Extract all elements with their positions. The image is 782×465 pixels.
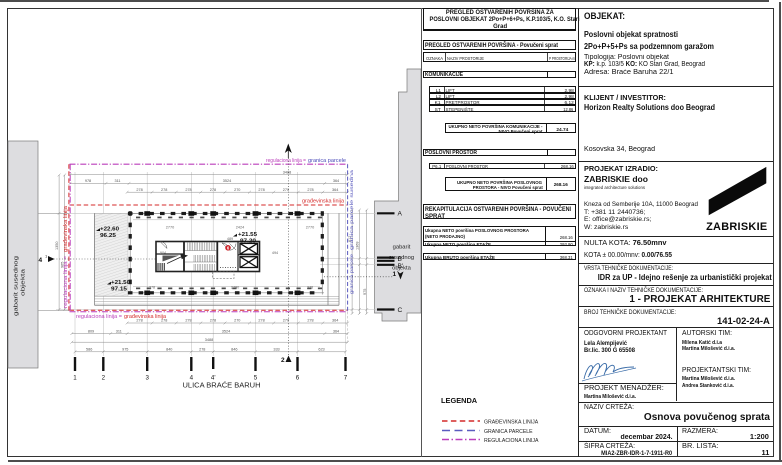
svg-text:278: 278 (210, 319, 216, 323)
svg-text:975: 975 (363, 289, 367, 295)
svg-text:2424: 2424 (236, 226, 244, 230)
svg-text:1: 1 (393, 271, 397, 278)
svg-text:840: 840 (166, 348, 172, 352)
svg-text:4': 4' (211, 375, 216, 382)
svg-text:REGULACIONA LINIJA: REGULACIONA LINIJA (484, 438, 539, 444)
svg-text:364: 364 (333, 329, 339, 333)
svg-text:904: 904 (160, 251, 166, 255)
svg-text:gabarit susednog: gabarit susednog (14, 256, 20, 316)
svg-text:364: 364 (333, 179, 339, 183)
svg-text:regulaciona linija =: regulaciona linija = (63, 256, 69, 308)
svg-text:3488: 3488 (283, 170, 291, 174)
svg-text:278: 278 (185, 319, 191, 323)
svg-text:278: 278 (307, 188, 313, 192)
svg-text:2: 2 (102, 375, 106, 382)
svg-text:278: 278 (307, 286, 313, 290)
svg-text:6: 6 (296, 375, 300, 382)
svg-text:B': B' (398, 263, 404, 270)
svg-text:3524: 3524 (222, 329, 230, 333)
svg-text:građevinska linija: građevinska linija (63, 206, 69, 252)
svg-text:ULICA BRAĆE BARUH: ULICA BRAĆE BARUH (183, 381, 261, 390)
svg-text:+22.60: +22.60 (100, 227, 119, 233)
svg-text:809: 809 (88, 329, 94, 333)
svg-text:3524: 3524 (223, 179, 231, 183)
svg-text:granica parcele susedna: granica parcele susedna (349, 169, 354, 250)
svg-text:278: 278 (258, 319, 264, 323)
svg-text:+21.55: +21.55 (238, 232, 257, 238)
svg-text:7: 7 (344, 375, 348, 382)
svg-text:278: 278 (185, 188, 191, 192)
svg-text:građevinska linija: građevinska linija (124, 314, 166, 320)
svg-text:278: 278 (210, 188, 216, 192)
svg-text:granica parcele: granica parcele (349, 253, 354, 294)
svg-text:270: 270 (234, 188, 240, 192)
svg-text:364: 364 (332, 188, 338, 192)
svg-text:278: 278 (199, 348, 205, 352)
svg-text:A: A (398, 211, 403, 218)
svg-text:GRANICA PARCELE: GRANICA PARCELE (484, 429, 533, 435)
svg-text:gabarit: gabarit (393, 245, 411, 251)
svg-text:4: 4 (190, 375, 194, 382)
svg-text:ZABRISKIE: ZABRISKIE (706, 221, 767, 233)
svg-text:+21.50: +21.50 (111, 280, 130, 286)
svg-text:96.25: 96.25 (100, 233, 116, 239)
svg-text:278: 278 (258, 188, 264, 192)
svg-text:846: 846 (231, 348, 237, 352)
svg-text:1: 1 (45, 254, 48, 259)
svg-text:2780: 2780 (231, 286, 239, 290)
svg-text:975: 975 (122, 348, 128, 352)
svg-text:333: 333 (273, 348, 279, 352)
svg-text:278: 278 (136, 188, 142, 192)
svg-text:regulaciona linija =: regulaciona linija = (266, 158, 306, 164)
svg-text:4: 4 (39, 257, 43, 264)
svg-text:2: 2 (281, 357, 285, 364)
svg-text:489: 489 (227, 237, 233, 241)
svg-text:GRAĐEVINSKA LINIJA: GRAĐEVINSKA LINIJA (484, 420, 539, 426)
svg-text:270: 270 (234, 319, 240, 323)
svg-text:311: 311 (116, 329, 122, 333)
svg-text:364: 364 (332, 319, 338, 323)
svg-text:1369: 1369 (356, 242, 360, 250)
svg-text:494: 494 (272, 251, 278, 255)
svg-text:1350: 1350 (55, 242, 59, 250)
svg-text:278: 278 (161, 188, 167, 192)
svg-text:97.15: 97.15 (111, 287, 127, 293)
svg-text:3488: 3488 (205, 338, 213, 342)
svg-text:regulaciona linija =: regulaciona linija = (76, 314, 122, 320)
svg-text:97.20: 97.20 (240, 239, 256, 245)
svg-text:granica parcele: granica parcele (308, 158, 346, 164)
svg-text:2770: 2770 (306, 226, 314, 230)
svg-text:278: 278 (307, 319, 313, 323)
svg-text:5: 5 (254, 375, 258, 382)
svg-text:objekta: objekta (21, 269, 27, 296)
svg-text:623: 623 (318, 348, 324, 352)
svg-text:1: 1 (73, 375, 77, 382)
svg-text:586: 586 (86, 348, 92, 352)
svg-text:270: 270 (283, 188, 289, 192)
svg-text:C: C (398, 307, 403, 314)
svg-text:2770: 2770 (166, 226, 174, 230)
svg-text:278: 278 (149, 286, 155, 290)
svg-text:311: 311 (114, 179, 120, 183)
svg-text:978: 978 (85, 179, 91, 183)
svg-text:građevinska linija: građevinska linija (302, 199, 344, 205)
svg-text:3: 3 (145, 375, 149, 382)
